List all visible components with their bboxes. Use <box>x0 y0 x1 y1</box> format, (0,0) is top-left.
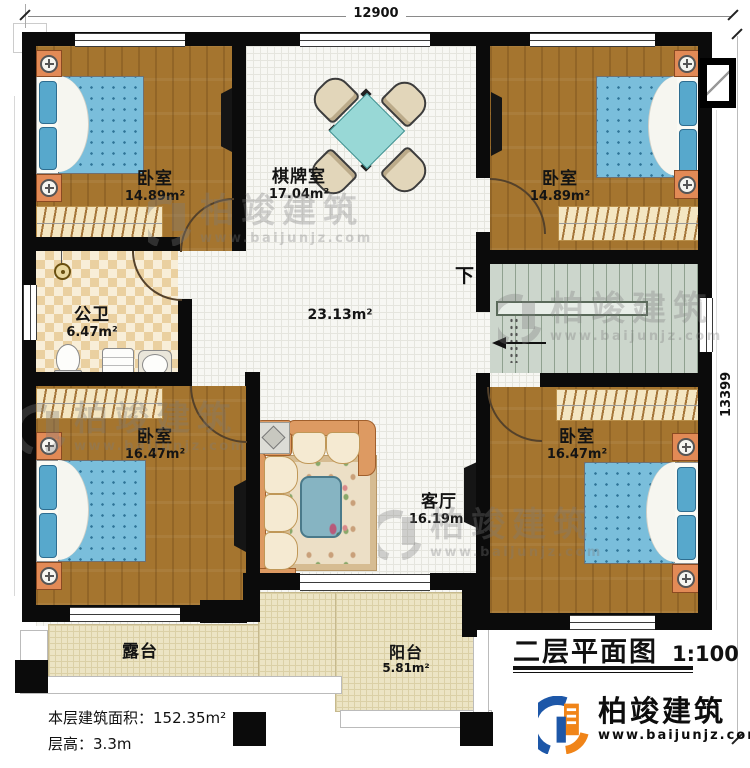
floor-height-value: 3.3m <box>93 735 131 753</box>
room-label-bedroom-bl: 卧室 16.47m² <box>105 428 205 462</box>
room-area: 17.04m² <box>249 188 349 203</box>
wardrobe <box>36 206 163 241</box>
room-label-hall: 23.13m² <box>290 307 390 323</box>
pillow <box>39 81 57 124</box>
terrace-parapet <box>36 676 342 694</box>
drawing-scale: 1:100 <box>672 642 739 666</box>
room-name: 露台 <box>98 643 182 663</box>
pillow <box>679 129 697 174</box>
dimension-right-value: 13399 <box>719 362 737 426</box>
nightstand-knob-icon <box>678 176 696 194</box>
drawing-title-text: 二层平面图 <box>513 630 658 669</box>
nightstand <box>36 174 62 202</box>
tv-icon <box>234 480 246 552</box>
wall <box>476 46 490 178</box>
room-area: 16.19m² <box>389 513 489 528</box>
wardrobe <box>36 388 163 419</box>
sliding-door <box>300 574 430 591</box>
nightstand <box>36 50 62 77</box>
room-area: 5.81m² <box>366 662 446 676</box>
pillow <box>39 513 57 558</box>
column <box>233 712 266 746</box>
room-area: 14.89m² <box>510 190 610 205</box>
window <box>570 615 655 630</box>
tv-icon <box>491 92 502 156</box>
floor-stats: 本层建筑面积：152.35m² 层高：3.3m <box>48 706 226 757</box>
nightstand-knob-icon <box>40 437 58 455</box>
floor-area-label: 本层建筑面积： <box>48 709 153 727</box>
room-area: 16.47m² <box>105 448 205 463</box>
nightstand <box>672 564 700 593</box>
floor-plan: 卧室 14.89m² 棋牌室 17.04m² 卧室 14.89m² 公卫 6.4… <box>0 0 750 768</box>
stair-handrail <box>496 301 648 316</box>
floor-area-value: 152.35m² <box>153 709 226 727</box>
room-label-bedroom-br: 卧室 16.47m² <box>527 428 627 462</box>
pillow <box>679 81 697 126</box>
stairs-direction-label: 下 <box>455 261 474 288</box>
nightstand-knob-icon <box>678 55 696 73</box>
nightstand-knob-icon <box>677 570 695 588</box>
window <box>23 285 37 340</box>
nightstand <box>674 170 700 199</box>
room-name: 卧室 <box>510 170 610 190</box>
dimension-tick-icon <box>727 9 738 20</box>
nightstand-knob-icon <box>40 55 58 73</box>
wardrobe <box>556 389 700 421</box>
coffee-table <box>300 476 342 538</box>
floor-height-note: 层高：3.3m <box>48 732 226 758</box>
dimension-top-value: 12900 <box>346 6 406 23</box>
nightstand <box>36 562 62 590</box>
staircase <box>490 264 698 373</box>
room-name: 卧室 <box>527 428 627 448</box>
window <box>300 33 430 47</box>
brand-logo-icon <box>538 696 590 754</box>
nightstand <box>672 433 700 461</box>
room-label-bedroom-tl: 卧室 14.89m² <box>105 170 205 204</box>
wall <box>22 372 190 386</box>
room-label-bedroom-tr: 卧室 14.89m² <box>510 170 610 204</box>
wall <box>540 373 712 387</box>
frame-line <box>14 96 15 596</box>
wall <box>245 372 260 386</box>
sofa-cushion <box>292 432 326 464</box>
brand-url: www.baijunjz.com <box>598 728 750 743</box>
room-area: 16.47m² <box>527 448 627 463</box>
room-label-living-room: 客厅 16.19m² <box>389 493 489 527</box>
nightstand-knob-icon <box>40 567 58 585</box>
room-label-terrace: 露台 <box>98 643 182 663</box>
room-name: 阳台 <box>366 644 446 662</box>
wall <box>476 373 490 387</box>
wall <box>476 250 712 264</box>
floor-height-label: 层高： <box>48 735 93 753</box>
sofa-cushion <box>326 432 360 464</box>
balcony-floor-left <box>258 592 337 678</box>
column <box>460 712 493 746</box>
pillow <box>39 127 57 170</box>
pillow <box>39 465 57 510</box>
wall <box>476 264 490 312</box>
room-label-balcony: 阳台 5.81m² <box>366 644 446 676</box>
nightstand <box>674 50 700 77</box>
wall <box>22 237 180 251</box>
drawing-title: 二层平面图 1:100 <box>513 630 739 669</box>
column <box>15 660 48 693</box>
nightstand-knob-icon <box>677 438 695 456</box>
room-name: 棋牌室 <box>249 168 349 188</box>
wall <box>232 46 246 251</box>
stair-break-dots <box>509 317 519 363</box>
room-area: 14.89m² <box>105 190 205 205</box>
window <box>70 607 180 622</box>
sofa-cushion <box>264 532 298 570</box>
floor-area-note: 本层建筑面积：152.35m² <box>48 706 226 732</box>
pillow <box>677 515 696 560</box>
room-label-game-room: 棋牌室 17.04m² <box>249 168 349 202</box>
room-name: 客厅 <box>389 493 489 513</box>
room-name: 卧室 <box>105 170 205 190</box>
room-label-bathroom: 公卫 6.47m² <box>42 306 142 340</box>
tv-icon <box>221 88 232 152</box>
stair-direction-arrow-icon <box>492 337 506 349</box>
room-area: 23.13m² <box>290 307 390 323</box>
brand-logo: 柏竣建筑 www.baijunjz.com <box>538 696 750 754</box>
brand-name: 柏竣建筑 <box>598 694 726 728</box>
title-underline <box>513 666 693 673</box>
nightstand <box>36 432 62 460</box>
window <box>75 33 185 47</box>
flue-box <box>700 58 736 108</box>
wall <box>476 232 490 250</box>
wall <box>462 573 477 637</box>
pillow <box>677 467 696 512</box>
frame-line <box>716 110 717 610</box>
room-area: 6.47m² <box>42 326 142 341</box>
room-name: 卧室 <box>105 428 205 448</box>
sofa-armrest <box>358 420 376 476</box>
window <box>699 298 713 352</box>
wall-pier <box>200 600 247 623</box>
ceiling-lamp-icon <box>54 263 71 280</box>
stair-direction-line <box>506 342 546 344</box>
sofa-cushion <box>264 456 298 494</box>
sofa-cushion <box>264 494 298 532</box>
nightstand-knob-icon <box>40 179 58 197</box>
wardrobe <box>558 206 700 241</box>
window <box>530 33 655 47</box>
room-name: 公卫 <box>42 306 142 326</box>
